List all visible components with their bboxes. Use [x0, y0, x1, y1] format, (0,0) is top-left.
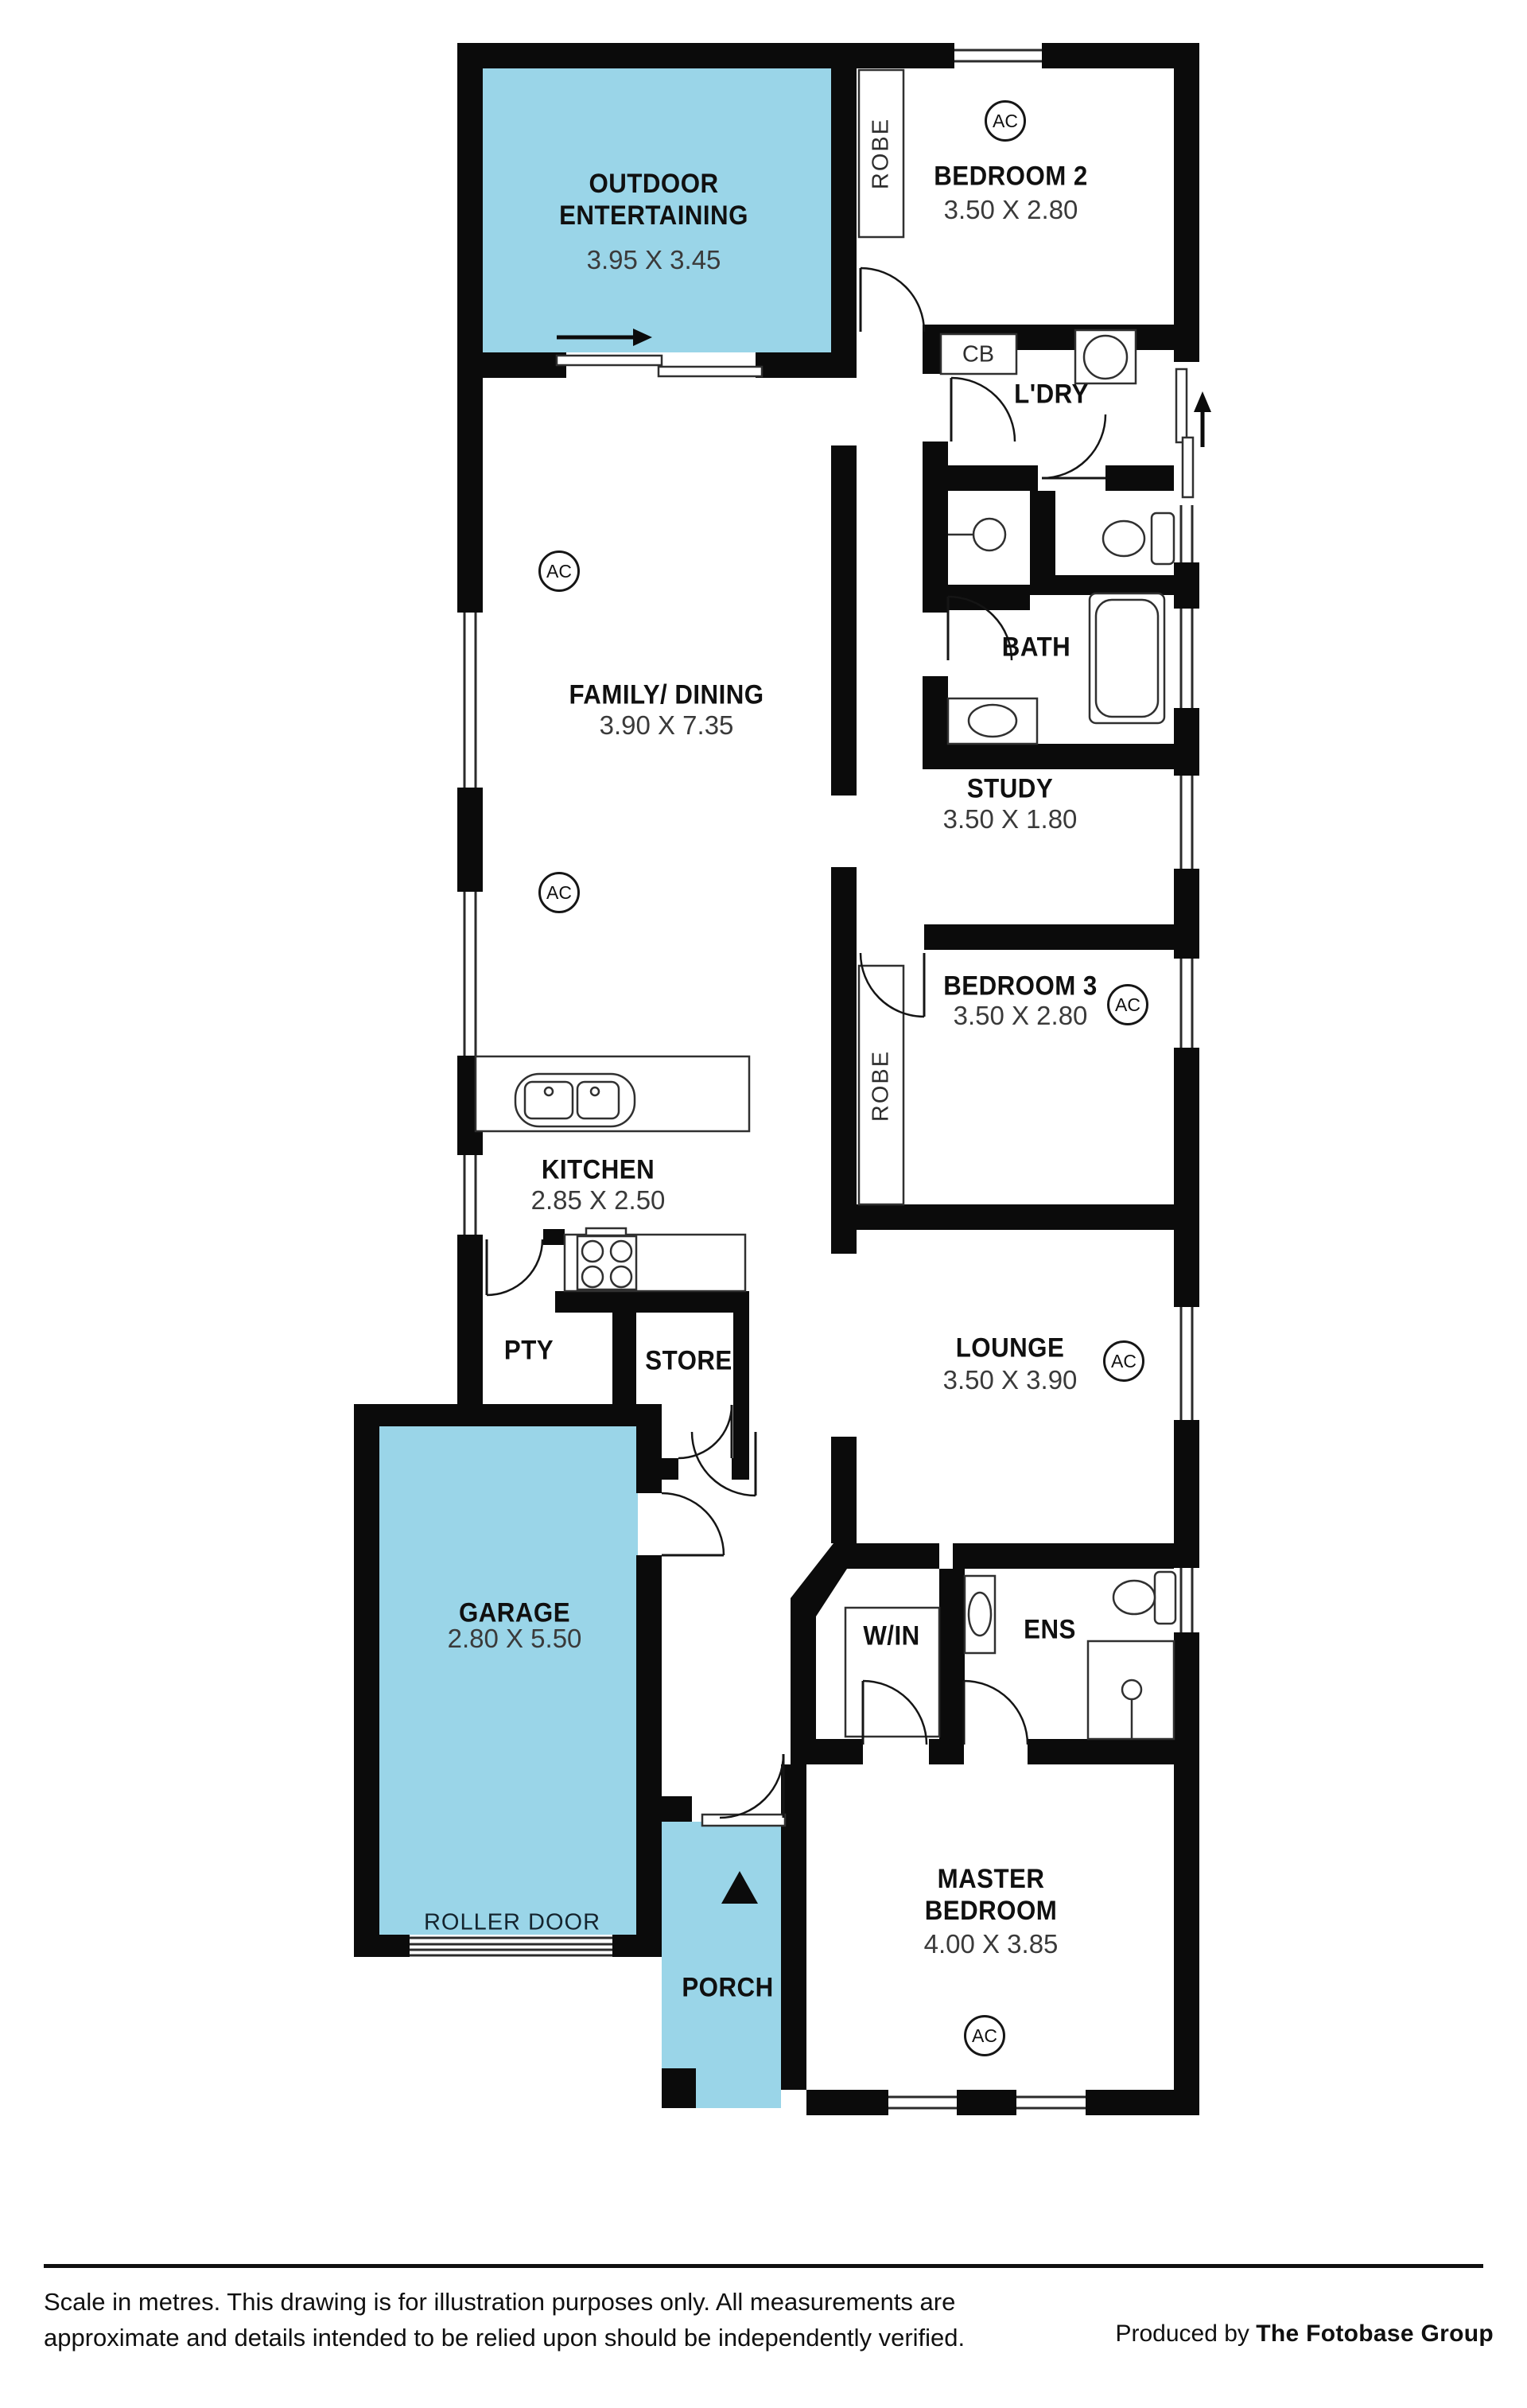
ac-marker: AC	[1103, 1340, 1144, 1382]
window	[954, 43, 1042, 68]
footer-disclaimer: Scale in metres. This drawing is for ill…	[44, 2285, 965, 2356]
window	[888, 2090, 957, 2115]
disclaimer-line1: Scale in metres. This drawing is for ill…	[44, 2288, 955, 2316]
shower-icon	[1088, 1641, 1174, 1739]
room-label-bedroom2: BEDROOM 2	[934, 161, 1088, 193]
room-dims-lounge: 3.50 X 3.90	[943, 1365, 1078, 1395]
room-dims-master: 4.00 X 3.85	[924, 1929, 1059, 1959]
door-arc	[964, 1681, 1028, 1745]
vanity-icon	[965, 1576, 995, 1653]
footer-credit: Produced by The Fotobase Group	[1115, 2320, 1494, 2348]
cooktop-icon	[577, 1228, 636, 1290]
window	[457, 613, 483, 788]
external-door	[1174, 362, 1199, 505]
room-label-outdoor: OUTDOOR ENTERTAINING	[530, 168, 779, 231]
room-label-bath: BATH	[1002, 632, 1070, 663]
window	[1174, 776, 1199, 869]
window	[1174, 500, 1199, 562]
bathtub-icon	[1090, 593, 1164, 723]
room-dims-outdoor: 3.95 X 3.45	[587, 245, 721, 275]
room-label-porch: PORCH	[682, 1973, 773, 2004]
door-arc	[951, 378, 1015, 442]
room-dims-kitchen: 2.85 X 2.50	[531, 1185, 666, 1216]
door-arc	[1042, 414, 1105, 478]
room-label-study: STUDY	[967, 774, 1053, 805]
room-label-ensuite: ENS	[1024, 1615, 1076, 1646]
basin-icon	[948, 519, 1005, 550]
room-label-store: STORE	[645, 1346, 732, 1377]
door-arc	[487, 1239, 542, 1295]
separator-line	[44, 2264, 1483, 2268]
room-label-bedroom3: BEDROOM 3	[943, 971, 1098, 1002]
room-label-pantry: PTY	[504, 1336, 554, 1367]
ac-marker: AC	[538, 550, 580, 592]
room-dims-study: 3.50 X 1.80	[943, 804, 1078, 834]
porch-area-fill	[662, 1822, 781, 2108]
window	[1174, 959, 1199, 1048]
garage-area-fill	[379, 1426, 638, 1935]
disclaimer-line2: approximate and details intended to be r…	[44, 2324, 965, 2352]
door-arc	[662, 1493, 724, 1555]
room-dims-family: 3.90 X 7.35	[600, 710, 734, 741]
ac-marker: AC	[985, 100, 1026, 142]
window	[1174, 609, 1199, 708]
roller-door-label: ROLLER DOOR	[424, 1910, 600, 1936]
window	[1174, 1307, 1199, 1420]
room-label-kitchen: KITCHEN	[542, 1155, 655, 1186]
room-dims-garage: 2.80 X 5.50	[448, 1624, 582, 1654]
kitchen-sink-icon	[515, 1074, 635, 1126]
floorplan-page: OUTDOOR ENTERTAINING 3.95 X 3.45 BEDROOM…	[0, 0, 1527, 2408]
window	[457, 1155, 483, 1235]
toilet-icon	[1103, 513, 1174, 564]
room-label-master: MASTER BEDROOM	[899, 1863, 1082, 1927]
ac-marker: AC	[964, 2015, 1005, 2056]
toilet-icon	[1113, 1572, 1175, 1624]
window	[1174, 1568, 1199, 1632]
door-arc	[678, 1405, 732, 1458]
door-arc	[720, 1754, 783, 1818]
room-label-lounge: LOUNGE	[956, 1333, 1065, 1364]
washing-machine-icon	[1075, 330, 1136, 383]
ac-marker: AC	[538, 872, 580, 913]
window	[457, 892, 483, 1056]
cb-label: CB	[962, 342, 994, 368]
robe-label: ROBE	[868, 118, 895, 189]
floorplan-drawing	[0, 0, 1527, 2408]
room-label-family: FAMILY/ DINING	[569, 680, 763, 711]
vanity-icon	[948, 698, 1037, 744]
roller-door-hatch	[410, 1935, 612, 1957]
robe-label: ROBE	[868, 1050, 895, 1122]
room-dims-bedroom2: 3.50 X 2.80	[944, 195, 1078, 225]
room-label-walkin: W/IN	[863, 1621, 919, 1652]
door-threshold	[702, 1815, 785, 1826]
door-arc	[861, 268, 924, 332]
room-label-laundry: L'DRY	[1014, 379, 1089, 410]
sliding-door	[557, 352, 762, 378]
room-dims-bedroom3: 3.50 X 2.80	[954, 1001, 1088, 1031]
footer-credit-name: The Fotobase Group	[1256, 2320, 1494, 2347]
window	[1016, 2090, 1086, 2115]
ac-marker: AC	[1107, 984, 1148, 1025]
